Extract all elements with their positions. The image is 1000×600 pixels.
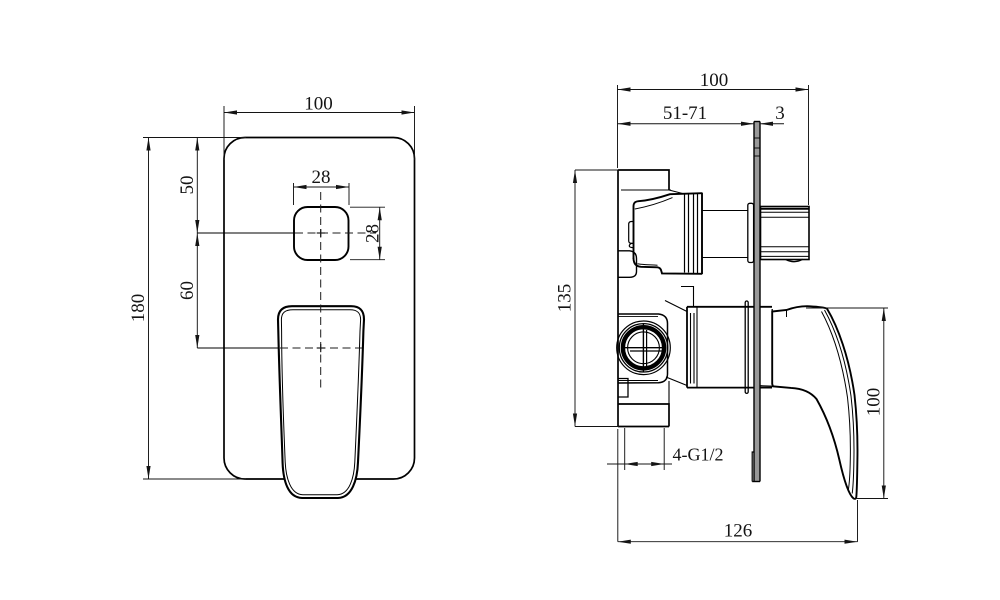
svg-text:60: 60 (177, 281, 198, 300)
svg-text:135: 135 (555, 284, 576, 313)
svg-text:51-71: 51-71 (663, 103, 707, 124)
svg-text:100: 100 (700, 70, 729, 91)
svg-text:100: 100 (863, 388, 884, 417)
svg-text:3: 3 (775, 103, 785, 124)
svg-text:4-G1/2: 4-G1/2 (673, 445, 724, 465)
svg-text:100: 100 (304, 94, 333, 115)
svg-text:126: 126 (724, 521, 753, 542)
svg-text:50: 50 (177, 176, 198, 195)
svg-text:28: 28 (312, 167, 331, 188)
svg-text:180: 180 (128, 294, 149, 323)
svg-text:28: 28 (362, 224, 383, 243)
